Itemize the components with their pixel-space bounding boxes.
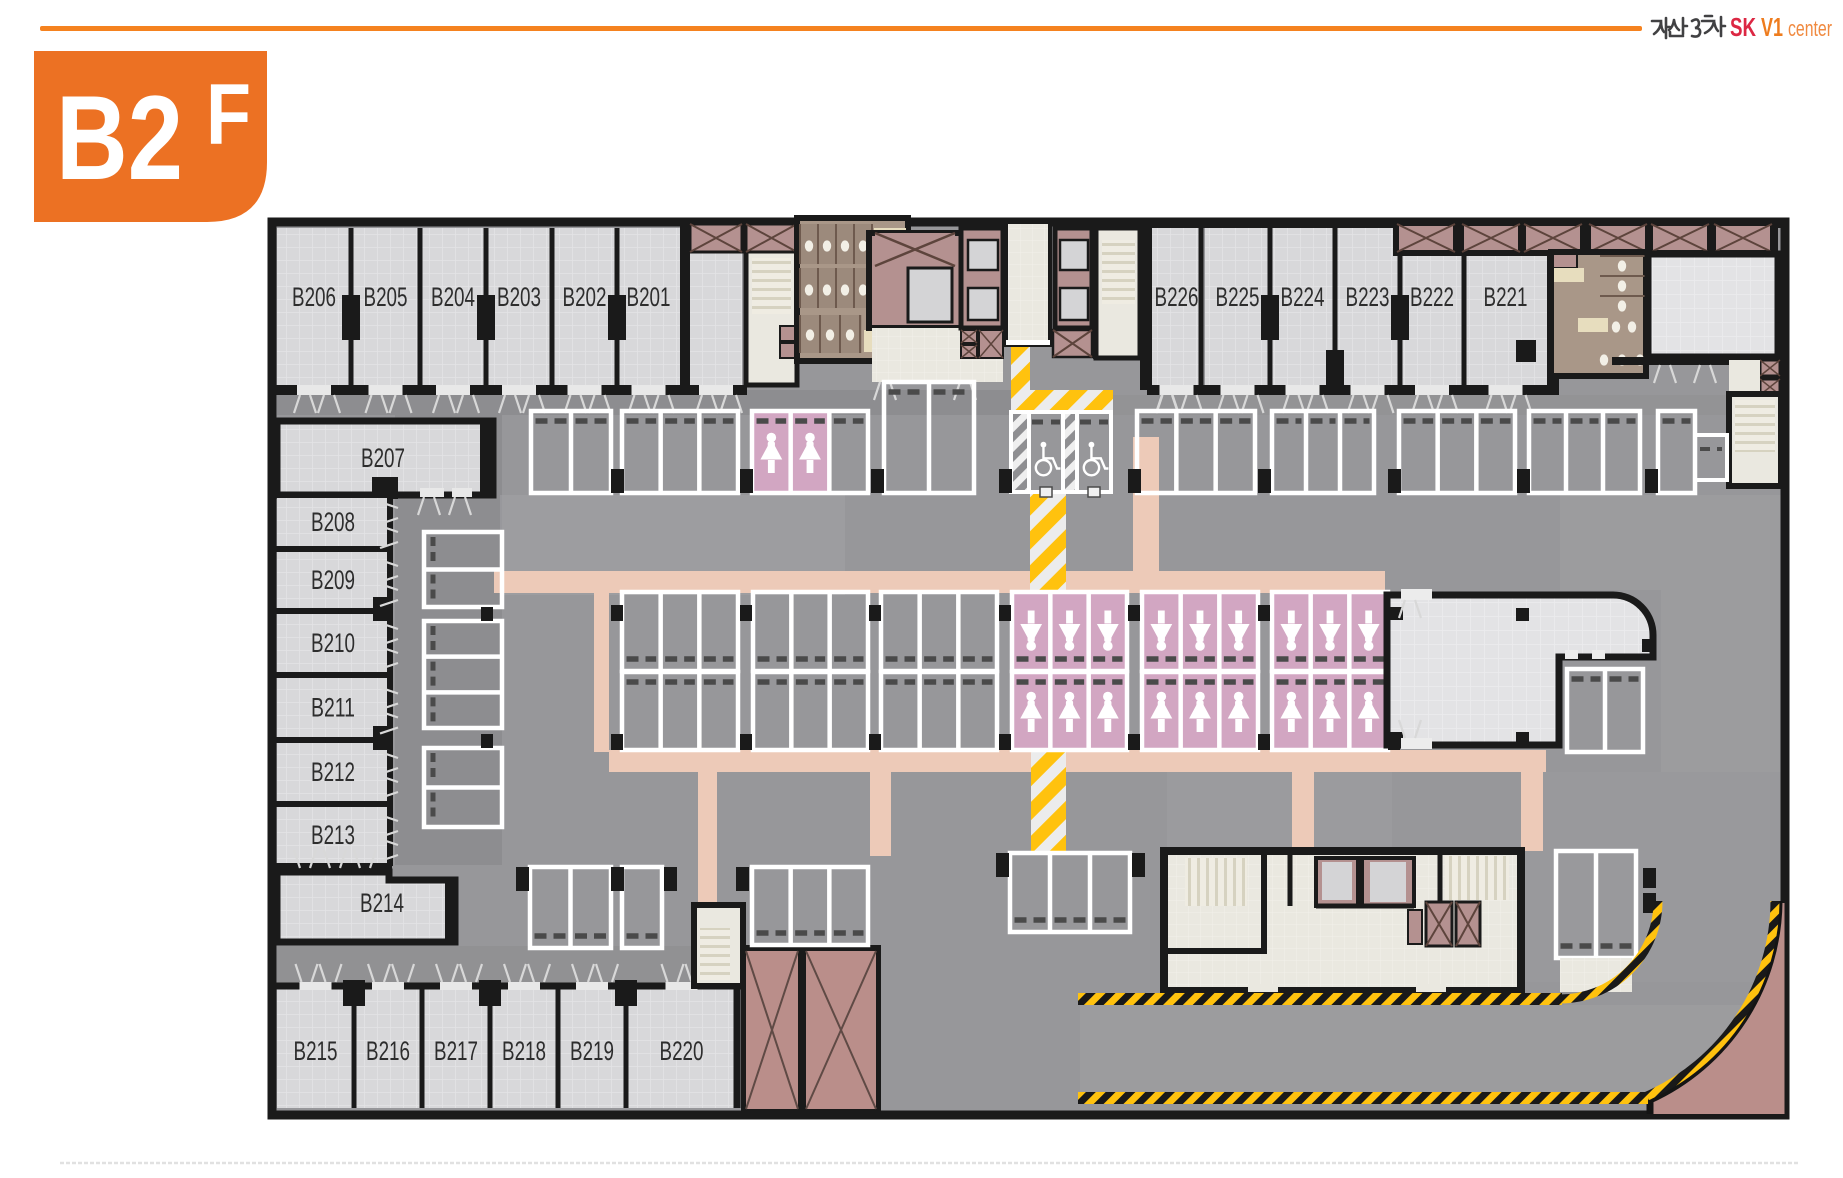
svg-text:B214: B214	[360, 888, 404, 918]
svg-text:B208: B208	[311, 507, 355, 537]
svg-text:V1: V1	[1761, 12, 1783, 42]
svg-text:B207: B207	[361, 443, 405, 473]
svg-text:B216: B216	[366, 1036, 410, 1066]
svg-text:B218: B218	[502, 1036, 546, 1066]
svg-text:B226: B226	[1155, 282, 1199, 312]
svg-text:B202: B202	[563, 282, 607, 312]
svg-text:B221: B221	[1484, 282, 1528, 312]
svg-text:B215: B215	[294, 1036, 338, 1066]
svg-text:B219: B219	[570, 1036, 614, 1066]
svg-text:B225: B225	[1216, 282, 1260, 312]
svg-text:B209: B209	[311, 565, 355, 595]
svg-text:B222: B222	[1410, 282, 1454, 312]
svg-text:B204: B204	[431, 282, 475, 312]
svg-text:B201: B201	[627, 282, 671, 312]
svg-text:B213: B213	[311, 820, 355, 850]
svg-text:B210: B210	[311, 628, 355, 658]
svg-text:B212: B212	[311, 757, 355, 787]
svg-text:B2: B2	[56, 71, 183, 205]
svg-text:B203: B203	[497, 282, 541, 312]
svg-text:B211: B211	[311, 693, 355, 723]
svg-text:B217: B217	[434, 1036, 478, 1066]
svg-text:B206: B206	[292, 282, 336, 312]
svg-text:SK: SK	[1730, 12, 1756, 42]
svg-text:F: F	[206, 67, 251, 163]
svg-text:center: center	[1788, 16, 1832, 41]
svg-text:B220: B220	[660, 1036, 704, 1066]
svg-text:B205: B205	[364, 282, 408, 312]
svg-text:B224: B224	[1281, 282, 1325, 312]
svg-text:B223: B223	[1346, 282, 1390, 312]
